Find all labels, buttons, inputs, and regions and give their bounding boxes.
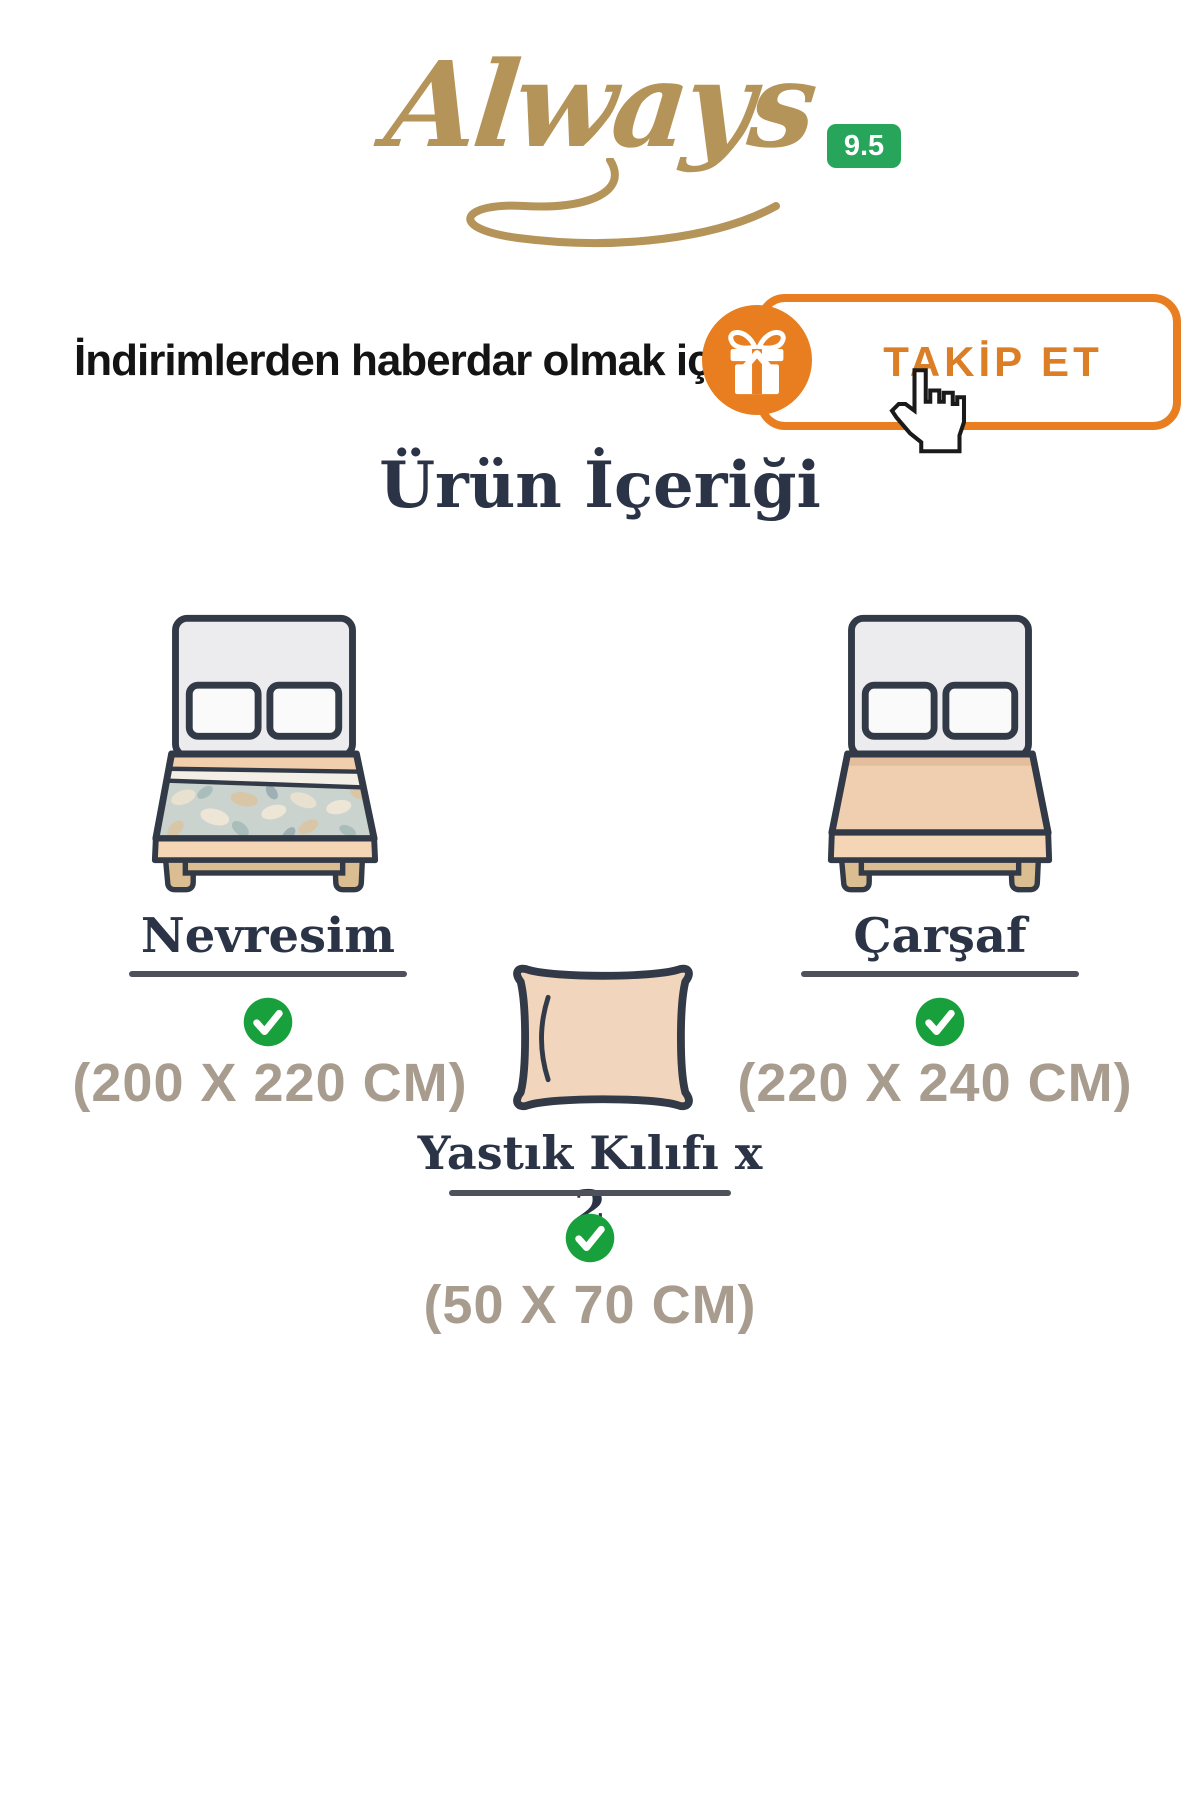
item-name-nevresim: Nevresim bbox=[118, 908, 418, 964]
divider-carsaf bbox=[801, 971, 1079, 977]
check-circle-icon bbox=[564, 1212, 616, 1264]
hand-cursor-icon bbox=[882, 368, 974, 458]
check-circle-icon bbox=[914, 996, 966, 1048]
product-content-card: Always 9.5 İndirimlerden haberdar olmak … bbox=[0, 0, 1200, 1800]
check-circle-icon bbox=[242, 996, 294, 1048]
bed-with-duvet-illustration bbox=[146, 610, 382, 898]
page-title: Ürün İçeriği bbox=[0, 448, 1200, 523]
brand-logo-text: Always bbox=[380, 40, 819, 170]
brand-logo: Always bbox=[0, 40, 1200, 170]
divider-nevresim bbox=[129, 971, 407, 977]
bed-with-sheet-illustration bbox=[822, 610, 1058, 898]
gift-icon bbox=[702, 305, 812, 415]
divider-yastik-kilifi bbox=[449, 1190, 731, 1196]
item-size-yastik-kilifi: (50 X 70 CM) bbox=[360, 1274, 820, 1336]
item-name-carsaf: Çarşaf bbox=[790, 908, 1090, 964]
item-size-carsaf: (220 X 240 CM) bbox=[690, 1052, 1180, 1114]
item-size-nevresim: (200 X 220 CM) bbox=[30, 1052, 510, 1114]
pillowcase-illustration bbox=[505, 962, 701, 1114]
seller-rating-badge: 9.5 bbox=[827, 124, 901, 168]
follow-prompt-text: İndirimlerden haberdar olmak için bbox=[74, 336, 748, 386]
